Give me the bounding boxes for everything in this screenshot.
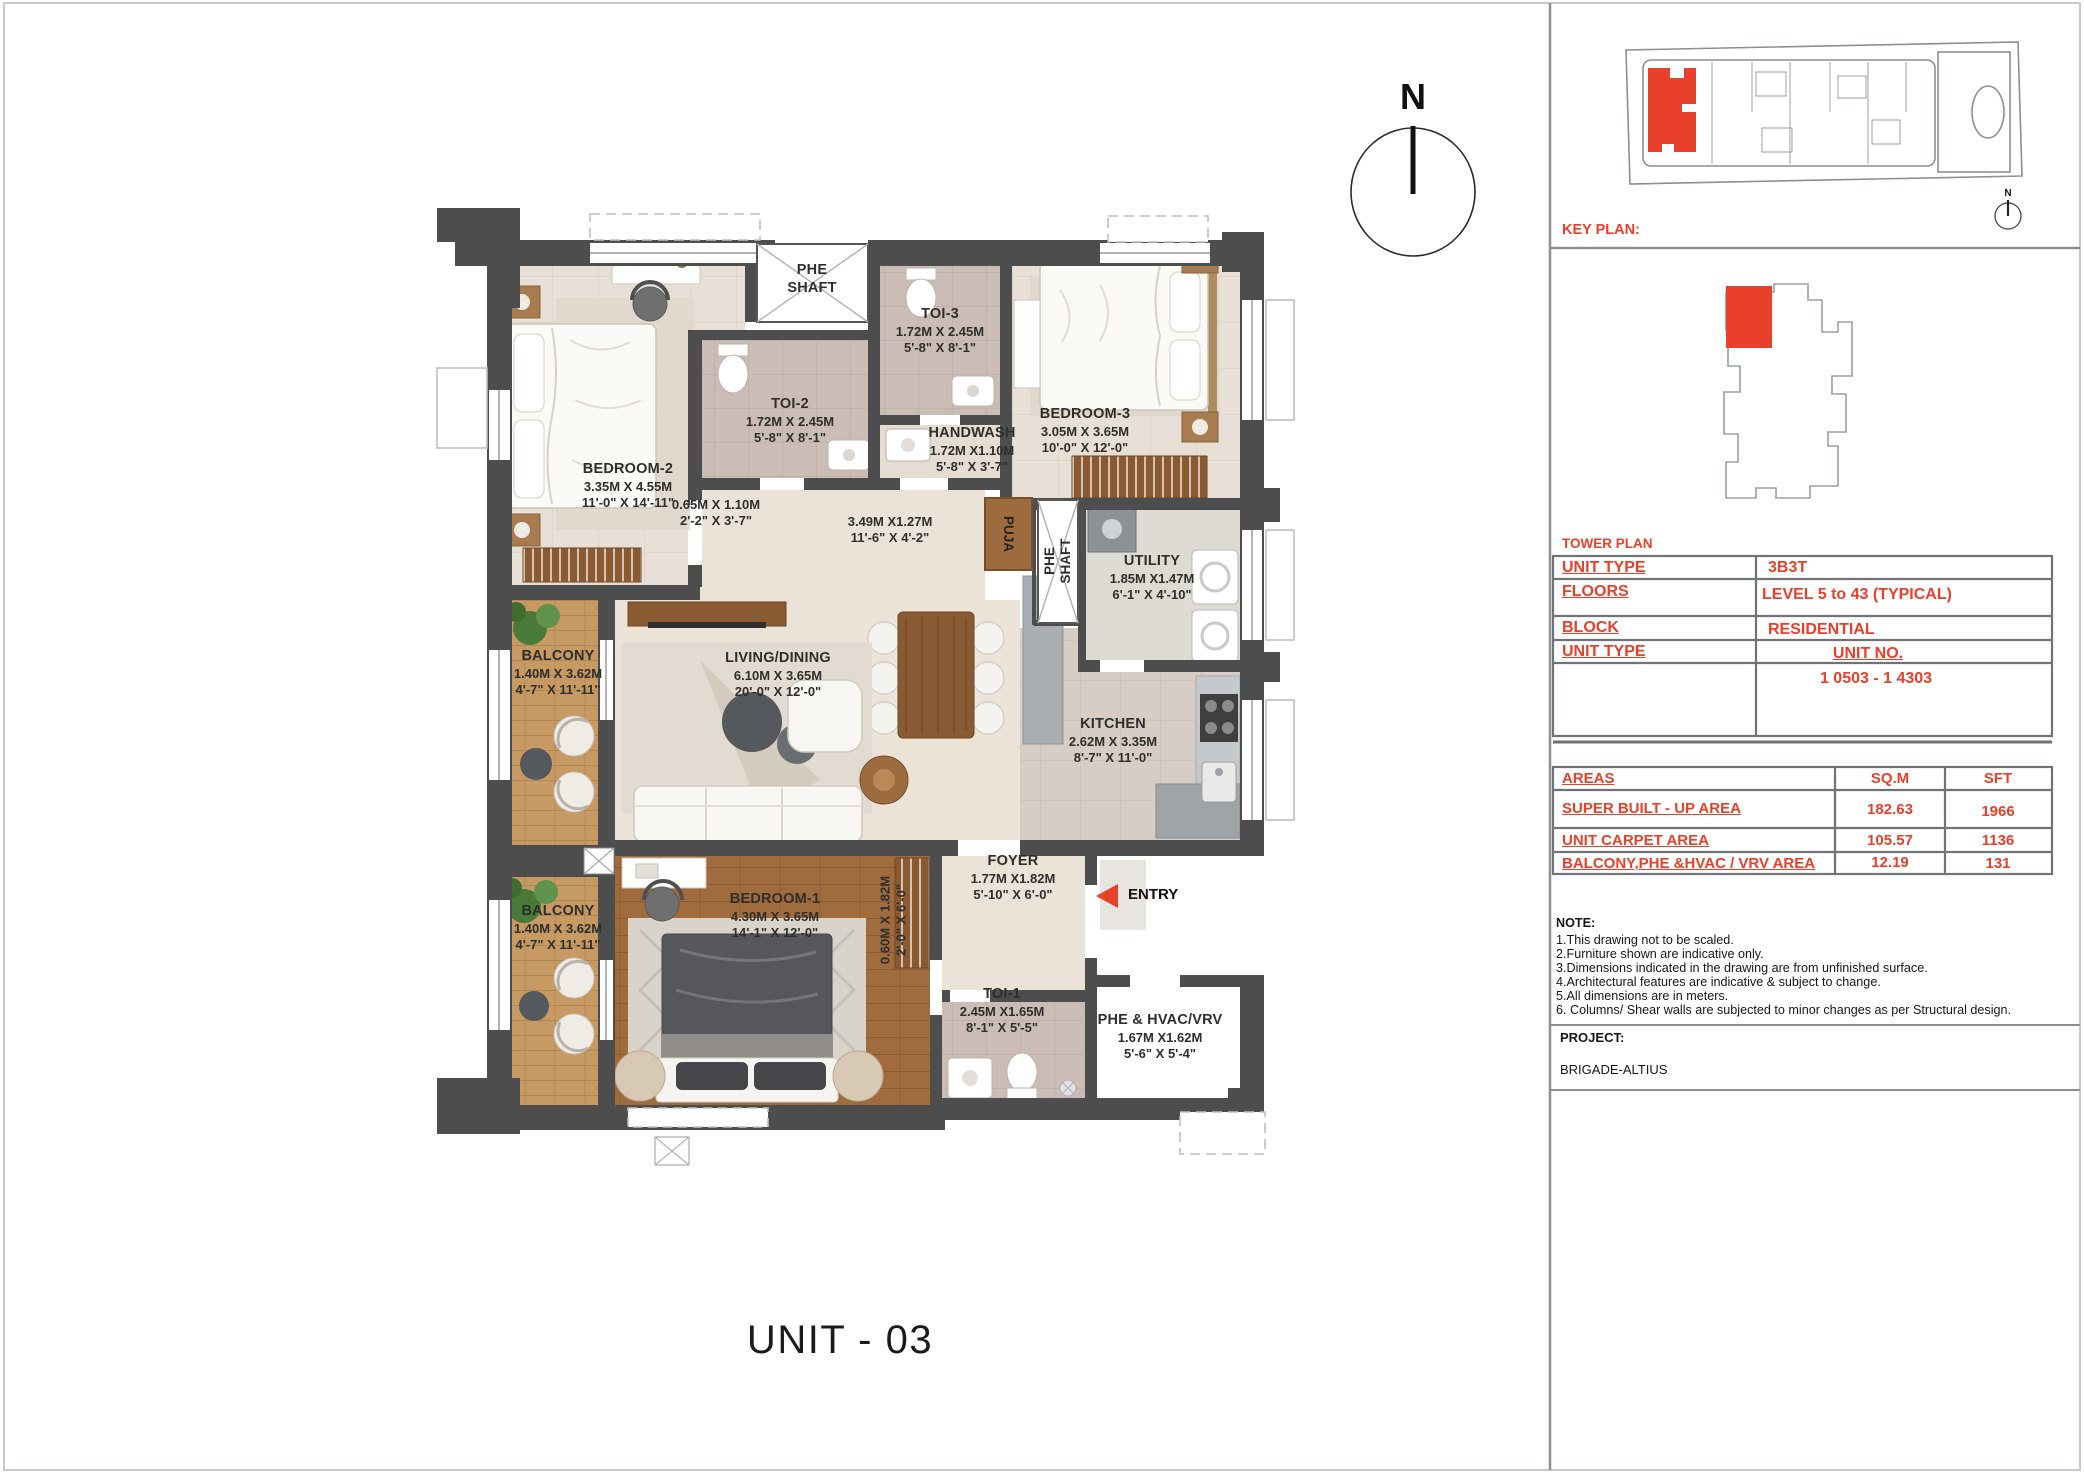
areas-row-balcony-sft: 131 xyxy=(1985,855,2010,872)
tower-plan-drawing xyxy=(1724,284,1852,498)
note-title: NOTE: xyxy=(1556,916,1595,930)
info-value-unit-range: 1 0503 - 1 4303 xyxy=(1820,670,1932,688)
room-label-bedroom-2: BEDROOM-2 3.35M X 4.55M 11'-0" X 14'-11" xyxy=(582,461,674,510)
areas-row-super-sft: 1966 xyxy=(1981,803,2014,820)
page-title: UNIT - 03 xyxy=(747,1318,933,1363)
tower-plan-label: TOWER PLAN xyxy=(1562,536,1653,551)
info-value-block: RESIDENTIAL xyxy=(1768,621,1875,639)
passage-dim-2: 3.49M X1.27M 11'-6" X 4'-2" xyxy=(848,514,933,546)
drawing-sheet: BEDROOM-2 3.35M X 4.55M 11'-0" X 14'-11"… xyxy=(0,0,2084,1474)
room-label-bedroom-3: BEDROOM-3 3.05M X 3.65M 10'-0" X 12'-0" xyxy=(1040,406,1130,455)
floor-plan-drawing xyxy=(0,0,2084,1474)
areas-row-carpet-sqm: 105.57 xyxy=(1867,832,1913,849)
note-line-6: 6. Columns/ Shear walls are subjected to… xyxy=(1556,1003,2011,1017)
key-plan-drawing xyxy=(1626,42,2022,229)
passage-dim-1: 0.65M X 1.10M 2'-2" X 3'-7" xyxy=(672,497,760,529)
areas-row-balcony-label: BALCONY,PHE &HVAC / VRV AREA xyxy=(1562,855,1815,872)
handwash-sinks xyxy=(886,429,930,461)
areas-header-sqm: SQ.M xyxy=(1871,770,1909,787)
info-label-block: BLOCK xyxy=(1562,619,1619,637)
room-label-toi-3: TOI-3 1.72M X 2.45M 5'-8" X 8'-1" xyxy=(896,306,984,355)
areas-header-sft: SFT xyxy=(1984,770,2012,787)
compass-n-label: N xyxy=(1400,76,1426,118)
wardrobe-2 xyxy=(523,548,641,582)
note-line-5: 5.All dimensions are in meters. xyxy=(1556,989,1728,1003)
info-value-unit-type: 3B3T xyxy=(1768,559,1807,577)
areas-row-super-label: SUPER BUILT - UP AREA xyxy=(1562,800,1741,817)
info-label-unit-type: UNIT TYPE xyxy=(1562,559,1646,577)
note-line-3: 3.Dimensions indicated in the drawing ar… xyxy=(1556,961,1928,975)
keyplan-compass-n-label: N xyxy=(2004,188,2011,199)
room-label-toi-2: TOI-2 1.72M X 2.45M 5'-8" X 8'-1" xyxy=(746,396,834,445)
project-name: BRIGADE-ALTIUS xyxy=(1560,1062,1667,1077)
key-plan-highlight-unit xyxy=(1648,68,1696,152)
room-label-handwash: HANDWASH 1.72M X1.10M 5'-8" X 3'-7" xyxy=(929,425,1016,474)
info-label-floors: FLOORS xyxy=(1562,583,1629,601)
passage-dim-3: 0.60M X 1.82M 2'-0" X 6'-0" xyxy=(877,876,908,964)
room-label-balcony-upper: BALCONY 1.40M X 3.62M 4'-7" X 11'-11" xyxy=(514,648,602,697)
areas-row-carpet-sft: 1136 xyxy=(1982,832,2015,849)
note-line-1: 1.This drawing not to be scaled. xyxy=(1556,933,1734,947)
north-compass xyxy=(1351,126,1475,256)
room-label-living-dining: LIVING/DINING 6.10M X 3.65M 20'-0" X 12'… xyxy=(725,650,831,699)
phe-shaft-top-label: PHE SHAFT xyxy=(787,262,836,297)
room-label-kitchen: KITCHEN 2.62M X 3.35M 8'-7" X 11'-0" xyxy=(1069,716,1157,765)
room-label-utility: UTILITY 1.85M X1.47M 6'-1" X 4'-10" xyxy=(1110,553,1195,602)
entry-label: ENTRY xyxy=(1128,886,1178,903)
project-label: PROJECT: xyxy=(1560,1030,1624,1045)
room-label-balcony-lower: BALCONY 1.40M X 3.62M 4'-7" X 11'-11" xyxy=(514,903,602,952)
entry-arrow-icon xyxy=(1096,884,1118,908)
areas-row-super-sqm: 182.63 xyxy=(1867,801,1913,818)
puja-label: PUJA xyxy=(1000,516,1016,552)
tower-plan-highlight-unit xyxy=(1726,286,1772,348)
note-line-2: 2.Furniture shown are indicative only. xyxy=(1556,947,1764,961)
key-plan-label: KEY PLAN: xyxy=(1562,222,1640,238)
room-label-toi-1: TOI-1 2.45M X1.65M 8'-1" X 5'-5" xyxy=(960,986,1045,1035)
dining-set xyxy=(868,612,1004,738)
room-label-phe-hvac: PHE & HVAC/VRV 1.67M X1.62M 5'-6" X 5'-4… xyxy=(1098,1012,1223,1061)
room-label-foyer: FOYER 1.77M X1.82M 5'-10" X 6'-0" xyxy=(971,853,1056,902)
wardrobe-3 xyxy=(1072,456,1207,498)
phe-shaft-mid-label: PHE SHAFT xyxy=(1042,539,1074,584)
areas-header-label: AREAS xyxy=(1562,770,1615,787)
note-line-4: 4.Architectural features are indicative … xyxy=(1556,975,1881,989)
areas-row-carpet-label: UNIT CARPET AREA xyxy=(1562,832,1709,849)
info-label-unit-type-2: UNIT TYPE xyxy=(1562,643,1646,661)
areas-row-balcony-sqm: 12.19 xyxy=(1871,854,1909,871)
room-label-bedroom-1: BEDROOM-1 4.30M X 3.65M 14'-1" X 12'-0" xyxy=(730,891,820,940)
info-value-floors: LEVEL 5 to 43 (TYPICAL) xyxy=(1762,586,1952,604)
info-value-unit-no: UNIT NO. xyxy=(1833,645,1903,663)
